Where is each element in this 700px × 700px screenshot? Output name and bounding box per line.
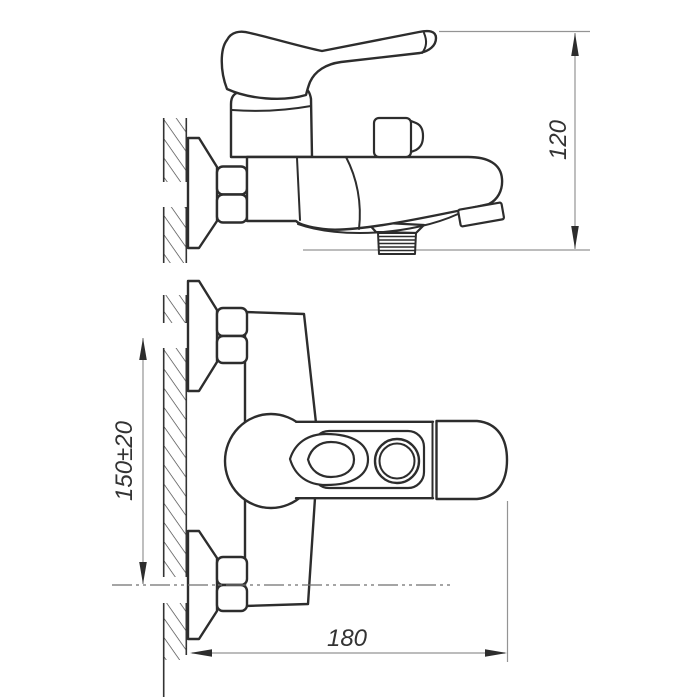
arrow-right-icon	[485, 649, 507, 657]
dimension-120: 120	[545, 33, 579, 249]
side-view: 120	[163, 31, 590, 263]
eccentric-escutcheon-side	[188, 138, 217, 248]
arrow-down-icon	[571, 226, 579, 249]
dimension-150: 150±20	[111, 338, 147, 584]
lever-handle-plan	[290, 421, 507, 499]
eccentric-escutcheon-plan-top	[188, 281, 247, 391]
dimension-label-spacing: 150±20	[111, 420, 138, 501]
dimension-label-length: 180	[327, 625, 368, 652]
diverter-knob	[374, 118, 423, 157]
faucet-technical-drawing: 120	[0, 0, 700, 700]
arrow-down-icon	[139, 562, 147, 584]
mounting-nut-side	[217, 167, 247, 223]
drawing-canvas: 120	[0, 0, 700, 700]
arrow-left-icon	[190, 649, 212, 657]
dimension-label-height: 120	[545, 119, 572, 160]
wall-hatch-side	[163, 118, 187, 263]
handle-button-ring	[375, 439, 419, 483]
arrow-up-icon	[139, 338, 147, 360]
handle-end-cap	[437, 421, 508, 499]
arrow-up-icon	[571, 33, 579, 56]
plan-view: 150±20 180	[111, 281, 508, 697]
lever-handle-side	[222, 31, 436, 99]
wall-hatch-plan	[163, 295, 187, 697]
